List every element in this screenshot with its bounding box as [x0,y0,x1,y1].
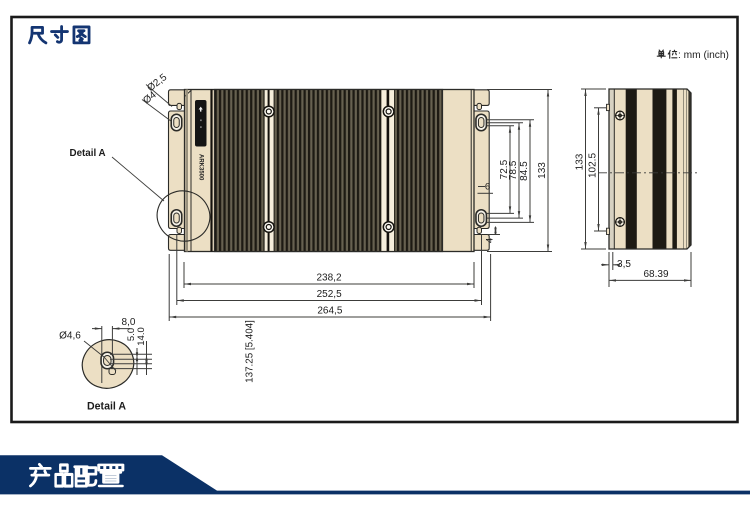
svg-text:ARK3500: ARK3500 [198,154,204,181]
svg-text:: mm (inch): : mm (inch) [678,50,729,61]
svg-text:4: 4 [485,238,496,243]
svg-text:14.0: 14.0 [136,327,147,346]
svg-text:133: 133 [537,162,548,179]
svg-text:84.5: 84.5 [519,161,530,181]
svg-text:Ø4,6: Ø4,6 [59,331,81,342]
svg-text:102.5: 102.5 [588,153,599,178]
svg-text:3,5: 3,5 [617,259,631,270]
svg-text:137.25 [5.404]: 137.25 [5.404] [245,320,256,383]
svg-text:68.39: 68.39 [643,269,668,280]
svg-text:Detail A: Detail A [70,148,106,159]
svg-text:Detail A: Detail A [87,401,126,413]
svg-text:6: 6 [485,182,490,193]
svg-text:78.5: 78.5 [508,160,519,180]
svg-text:133: 133 [575,153,586,170]
svg-text:264,5: 264,5 [317,306,342,317]
svg-text:252,5: 252,5 [317,289,342,300]
svg-text:8,0: 8,0 [122,317,136,328]
svg-text:238,2: 238,2 [316,273,341,284]
